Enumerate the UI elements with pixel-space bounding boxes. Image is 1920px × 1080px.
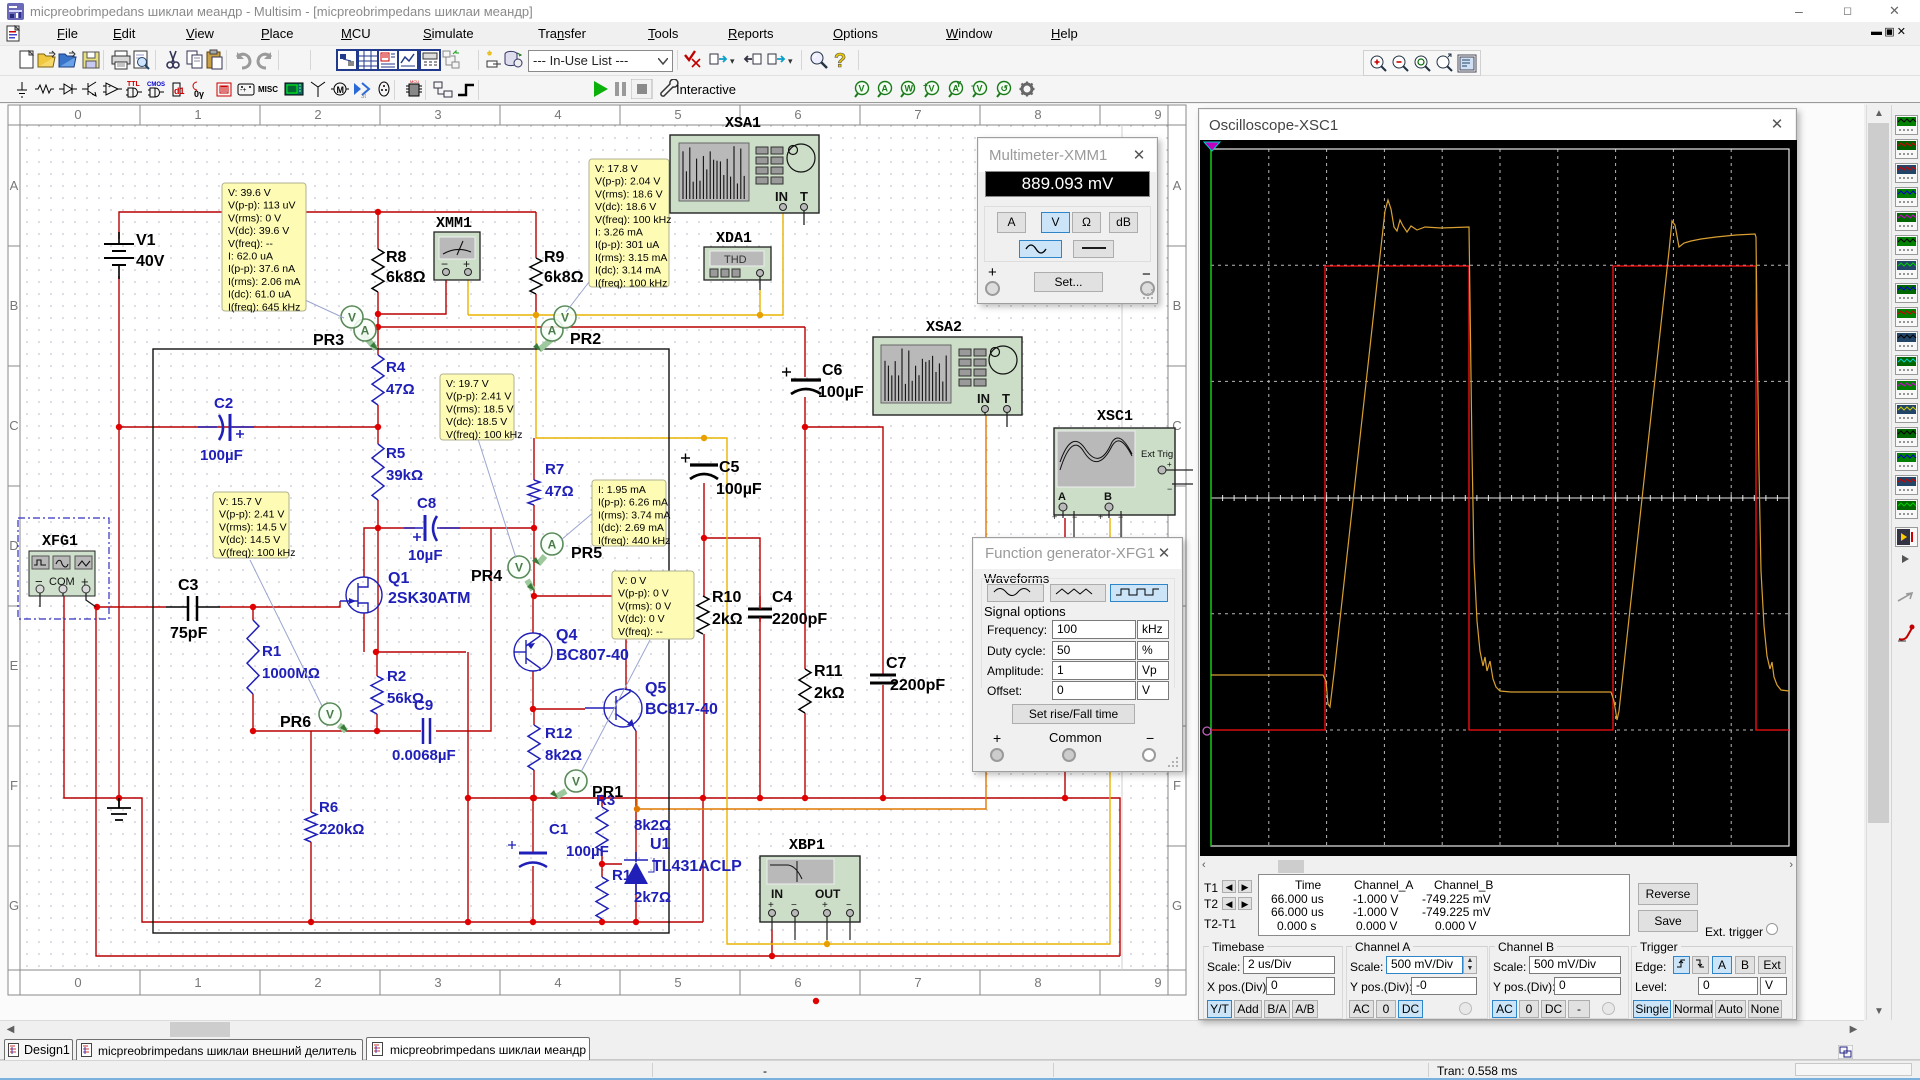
svg-text:V: V	[561, 311, 569, 325]
svg-text:C1: C1	[549, 821, 568, 838]
svg-text:+: +	[923, 81, 928, 90]
svg-text:B: B	[1104, 491, 1112, 503]
svg-text:V(freq): 100 kHz: V(freq): 100 kHz	[219, 547, 295, 559]
svg-text:I(rms): 2.06 mA: I(rms): 2.06 mA	[228, 276, 300, 288]
svg-text:1: 1	[194, 107, 201, 122]
svg-text:+: +	[108, 84, 111, 90]
svg-text:3: 3	[434, 107, 441, 122]
svg-text:V(freq): 100 kHz: V(freq): 100 kHz	[595, 214, 671, 226]
svg-text:V(rms): 18.5 V: V(rms): 18.5 V	[446, 403, 514, 415]
svg-text:4: 4	[554, 975, 561, 990]
svg-text:PR1: PR1	[592, 784, 623, 801]
svg-text:THD: THD	[724, 254, 747, 266]
svg-text:2200pF: 2200pF	[772, 611, 827, 628]
svg-text:XSA1: XSA1	[725, 115, 761, 132]
svg-text:9: 9	[1154, 107, 1161, 122]
svg-text:I(p-p): 37.6 nA: I(p-p): 37.6 nA	[228, 263, 295, 275]
svg-text:M: M	[337, 85, 345, 95]
svg-text:R10: R10	[712, 589, 741, 606]
svg-text:2SK30ATM: 2SK30ATM	[388, 590, 470, 607]
svg-text:V: V	[977, 84, 983, 94]
svg-text:IN: IN	[771, 887, 783, 901]
svg-text:I(freq): 100 kHz: I(freq): 100 kHz	[595, 277, 667, 289]
svg-text:3: 3	[434, 975, 441, 990]
svg-text:PR5: PR5	[571, 545, 602, 562]
svg-text:A: A	[1058, 491, 1066, 503]
svg-text:V(p-p): 2.04 V: V(p-p): 2.04 V	[595, 176, 660, 188]
svg-text:V(freq): --: V(freq): --	[618, 626, 663, 638]
svg-text:MISC: MISC	[258, 85, 278, 94]
svg-text:100µF: 100µF	[818, 384, 864, 401]
svg-text:R9: R9	[544, 249, 565, 266]
svg-text:R8: R8	[386, 249, 407, 266]
svg-text:IN: IN	[977, 391, 990, 406]
svg-text:3t: 3t	[361, 94, 366, 99]
svg-text:CMOS: CMOS	[147, 82, 165, 88]
svg-text:d1: d1	[174, 86, 185, 96]
svg-text:G: G	[1172, 898, 1182, 913]
svg-text:−: −	[1167, 484, 1172, 494]
svg-text:6: 6	[794, 107, 801, 122]
svg-text:?: ?	[834, 50, 846, 71]
svg-text:V(dc): 0 V: V(dc): 0 V	[618, 613, 665, 625]
svg-text:I: 1.95 mA: I: 1.95 mA	[598, 484, 646, 496]
svg-text:7: 7	[914, 975, 921, 990]
svg-text:V(p-p): 113 uV: V(p-p): 113 uV	[228, 200, 296, 212]
svg-text:2: 2	[314, 107, 321, 122]
svg-text:OUT: OUT	[815, 887, 841, 901]
svg-text:8: 8	[1034, 107, 1041, 122]
svg-text:6k8Ω: 6k8Ω	[544, 269, 584, 286]
svg-text:XSA2: XSA2	[926, 319, 962, 336]
svg-text:V1: V1	[136, 232, 156, 249]
svg-text:0: 0	[74, 107, 81, 122]
svg-text:V(freq): 100 kHz: V(freq): 100 kHz	[446, 429, 522, 441]
svg-text:−: −	[1072, 512, 1077, 522]
svg-text:A: A	[548, 538, 557, 552]
svg-text:R6: R6	[319, 799, 338, 816]
svg-text:2kΩ: 2kΩ	[712, 611, 743, 628]
svg-text:BC817-40: BC817-40	[645, 701, 718, 718]
svg-text:6: 6	[794, 975, 801, 990]
svg-text:I(rms): 3.15 mA: I(rms): 3.15 mA	[595, 252, 667, 264]
svg-text:V(dc): 18.6 V: V(dc): 18.6 V	[595, 201, 656, 213]
svg-text:W: W	[905, 84, 914, 94]
svg-text:1: 1	[194, 975, 201, 990]
svg-text:XSC1: XSC1	[1097, 408, 1133, 425]
svg-text:220kΩ: 220kΩ	[319, 821, 364, 838]
svg-text:100µF: 100µF	[566, 843, 609, 860]
svg-text:2200pF: 2200pF	[890, 677, 945, 694]
svg-text:XFG1: XFG1	[42, 533, 78, 550]
svg-text:10µF: 10µF	[408, 547, 443, 564]
svg-text:8: 8	[1034, 975, 1041, 990]
svg-text:I: 62.0 uA: I: 62.0 uA	[228, 251, 273, 263]
svg-text:V(dc): 39.6 V: V(dc): 39.6 V	[228, 225, 289, 237]
svg-text:R2: R2	[387, 668, 406, 685]
svg-text:XMM1: XMM1	[436, 215, 472, 232]
svg-text:V: V	[929, 84, 935, 94]
svg-text:9: 9	[1154, 975, 1161, 990]
svg-text:4: 4	[554, 107, 561, 122]
svg-text:F: F	[1173, 778, 1181, 793]
svg-text:PR3: PR3	[313, 332, 344, 349]
svg-text:I(p-p): 301 uA: I(p-p): 301 uA	[595, 239, 659, 251]
svg-text:TL431ACLP: TL431ACLP	[652, 858, 742, 875]
svg-text:I(dc): 61.0 uA: I(dc): 61.0 uA	[228, 289, 291, 301]
svg-text:BC807-40: BC807-40	[556, 647, 629, 664]
svg-text:V(rms): 0 V: V(rms): 0 V	[228, 212, 281, 224]
svg-text:G: G	[9, 898, 19, 913]
svg-text:C9: C9	[414, 697, 433, 714]
svg-text:R7: R7	[545, 461, 564, 478]
svg-text:5: 5	[674, 975, 681, 990]
svg-text:100µF: 100µF	[716, 481, 762, 498]
svg-text:F: F	[10, 778, 18, 793]
svg-text:47Ω: 47Ω	[386, 381, 415, 398]
svg-text:V: V	[348, 311, 356, 325]
svg-text:+: +	[1167, 460, 1172, 469]
svg-text:I(p-p): 6.26 mA: I(p-p): 6.26 mA	[598, 497, 668, 509]
svg-text:A: A	[548, 324, 557, 338]
svg-text:V(p-p): 0 V: V(p-p): 0 V	[618, 588, 669, 600]
svg-text:C5: C5	[719, 459, 740, 476]
svg-text:Q5: Q5	[645, 680, 666, 697]
svg-text:R1: R1	[262, 643, 281, 660]
svg-text:I: 3.26 mA: I: 3.26 mA	[595, 227, 643, 239]
svg-text:C2: C2	[214, 395, 233, 412]
svg-text:V: V	[859, 84, 865, 94]
svg-text:V: 0 V: V: 0 V	[618, 575, 646, 587]
svg-text:V: V	[326, 708, 334, 722]
svg-text:C8: C8	[417, 495, 436, 512]
svg-text:8k2Ω: 8k2Ω	[634, 817, 671, 834]
svg-text:B: B	[10, 298, 19, 313]
svg-text:8k2Ω: 8k2Ω	[545, 747, 582, 764]
svg-text:C3: C3	[178, 577, 199, 594]
svg-text:V(p-p): 2.41 V: V(p-p): 2.41 V	[446, 391, 511, 403]
svg-text:6k8Ω: 6k8Ω	[386, 269, 426, 286]
svg-text:47Ω: 47Ω	[545, 483, 574, 500]
svg-text:T: T	[800, 189, 808, 204]
svg-text:0.0068µF: 0.0068µF	[392, 747, 456, 764]
svg-text:R11: R11	[814, 663, 843, 680]
svg-text:C7: C7	[886, 655, 907, 672]
svg-text:A: A	[10, 178, 19, 193]
svg-text:↺: ↺	[1001, 84, 1009, 94]
svg-text:-: -	[971, 81, 974, 90]
svg-text:C4: C4	[772, 589, 793, 606]
svg-text:Ext Trig: Ext Trig	[1141, 449, 1173, 460]
svg-text:V(dc): 14.5 V: V(dc): 14.5 V	[219, 534, 280, 546]
svg-text:R12: R12	[545, 725, 573, 742]
svg-text:Y: Y	[956, 80, 962, 89]
svg-text:0γ: 0γ	[194, 89, 204, 99]
svg-text:0: 0	[74, 975, 81, 990]
svg-text:V(rms): 14.5 V: V(rms): 14.5 V	[219, 521, 287, 533]
svg-text:Q4: Q4	[556, 627, 577, 644]
svg-text:+: +	[1052, 512, 1057, 522]
svg-text:2kΩ: 2kΩ	[814, 685, 845, 702]
svg-text:PR2: PR2	[570, 331, 601, 348]
svg-text:V: V	[572, 775, 580, 789]
svg-text:E: E	[10, 658, 19, 673]
svg-text:PR4: PR4	[471, 568, 502, 585]
svg-text:V: V	[515, 561, 523, 575]
svg-text:D: D	[9, 538, 18, 553]
svg-text:R5: R5	[386, 445, 405, 462]
svg-text:7: 7	[914, 107, 921, 122]
svg-text:V(rms): 0 V: V(rms): 0 V	[618, 600, 671, 612]
svg-text:2k7Ω: 2k7Ω	[634, 889, 671, 906]
svg-text:A: A	[1173, 178, 1182, 193]
svg-text:40V: 40V	[136, 253, 165, 270]
svg-text:100µF: 100µF	[200, 447, 243, 464]
svg-text:75pF: 75pF	[170, 625, 208, 642]
svg-text:+: +	[1098, 512, 1103, 522]
svg-text:1000MΩ: 1000MΩ	[262, 665, 320, 682]
svg-text:I(freq): 645 kHz: I(freq): 645 kHz	[228, 301, 300, 313]
svg-text:I(dc): 3.14 mA: I(dc): 3.14 mA	[595, 265, 661, 277]
svg-text:T: T	[1002, 391, 1010, 406]
svg-text:C: C	[9, 418, 18, 433]
svg-text:V: 39.6 V: V: 39.6 V	[228, 187, 271, 199]
svg-text:R4: R4	[386, 359, 406, 376]
svg-text:I(dc): 2.69 mA: I(dc): 2.69 mA	[598, 522, 664, 534]
svg-text:2: 2	[314, 975, 321, 990]
svg-text:-+: -+	[240, 87, 246, 94]
svg-text:PR6: PR6	[280, 714, 311, 731]
svg-text:A: A	[361, 324, 370, 338]
svg-text:XDA1: XDA1	[716, 230, 752, 247]
svg-text:V: 19.7 V: V: 19.7 V	[446, 378, 489, 390]
svg-text:V(p-p): 2.41 V: V(p-p): 2.41 V	[219, 509, 284, 521]
svg-text:TTL: TTL	[127, 81, 141, 88]
svg-text:V: 17.8 V: V: 17.8 V	[595, 163, 638, 175]
svg-text:I(freq): 440 kHz: I(freq): 440 kHz	[598, 535, 670, 547]
svg-text:IN: IN	[775, 189, 788, 204]
svg-text:Q1: Q1	[388, 570, 409, 587]
svg-text:U1: U1	[650, 836, 671, 853]
svg-text:A: A	[882, 84, 889, 94]
svg-text:5: 5	[674, 107, 681, 122]
svg-text:39kΩ: 39kΩ	[386, 467, 423, 484]
svg-text:C6: C6	[822, 362, 843, 379]
svg-text:XBP1: XBP1	[789, 837, 825, 854]
svg-text:V(rms): 18.6 V: V(rms): 18.6 V	[595, 188, 663, 200]
svg-text:V(freq): --: V(freq): --	[228, 238, 273, 250]
svg-text:V: 15.7 V: V: 15.7 V	[219, 496, 262, 508]
svg-text:B: B	[1173, 298, 1182, 313]
svg-text:I(rms): 3.74 mA: I(rms): 3.74 mA	[598, 509, 670, 521]
svg-text:MCU: MCU	[410, 79, 419, 84]
svg-text:V(dc): 18.5 V: V(dc): 18.5 V	[446, 416, 507, 428]
